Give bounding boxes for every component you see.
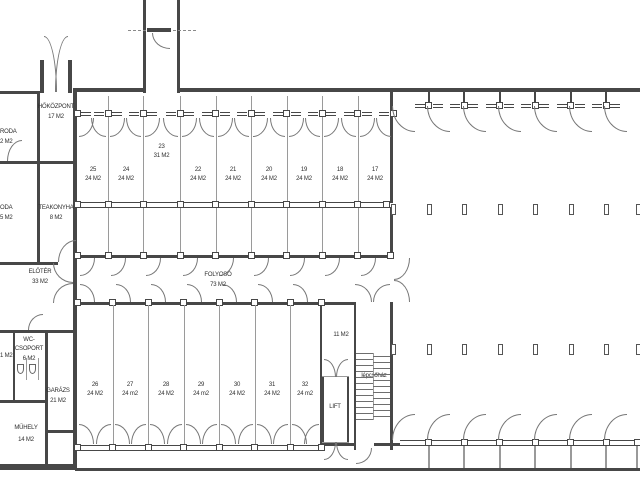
room-24-area: 24 M2 xyxy=(111,175,141,183)
structural-column xyxy=(533,344,538,355)
room-hokozpont-name: HŐKÖZPONT xyxy=(36,103,76,111)
wall-leftwing-bottom xyxy=(0,464,75,470)
room-muhely-area: 14 M2 xyxy=(7,436,45,444)
door-post xyxy=(603,439,610,446)
wall-leftwing-top xyxy=(0,91,40,94)
door-threshold xyxy=(129,112,139,116)
room-teakonyha-name: TEAKONYHA xyxy=(36,204,76,212)
stair-tread xyxy=(356,383,373,384)
room-20-area: 24 M2 xyxy=(254,175,284,183)
door-swing-arc xyxy=(427,414,450,440)
stair-tread xyxy=(356,365,373,366)
door-post xyxy=(567,439,574,446)
door-swing-arc xyxy=(463,106,486,132)
door-threshold xyxy=(220,112,230,116)
door-swing-arc xyxy=(604,414,627,440)
door-swing-arc xyxy=(80,258,95,276)
door-swing-arc xyxy=(392,106,415,132)
hall-double-door-arc xyxy=(394,258,410,280)
stair-tread xyxy=(356,353,373,354)
door-threshold xyxy=(362,112,372,116)
door-swing-arc xyxy=(167,424,182,444)
door-swing-arc xyxy=(218,118,233,137)
door-post xyxy=(177,110,184,117)
stair-tread xyxy=(356,395,373,396)
facade-post xyxy=(636,446,638,468)
window-mullion xyxy=(383,201,390,208)
door-swing-arc xyxy=(131,424,146,444)
door-threshold xyxy=(273,112,283,116)
wall-lift-right xyxy=(347,377,349,442)
structural-column xyxy=(427,204,432,215)
door-swing-arc xyxy=(534,106,557,132)
door-swing-arc xyxy=(115,424,130,444)
vestibule-area-label: 11 M2 xyxy=(329,331,353,339)
door-post xyxy=(318,444,325,451)
door-swing-arc xyxy=(254,258,269,276)
room-28-area: 24 M2 xyxy=(151,390,181,398)
door-swing-arc xyxy=(392,414,415,440)
door-post xyxy=(496,439,503,446)
wall-room-divider xyxy=(108,96,109,256)
room-iroda-upper-name-fragment: RODA xyxy=(0,128,16,136)
room-iroda-lower-area-fragment: 5 M2 xyxy=(0,214,16,222)
wall-leftwing-row4 xyxy=(0,400,45,403)
stair-tread xyxy=(356,389,373,390)
vestibule-double-door-arc xyxy=(355,284,372,302)
facade-post xyxy=(499,446,501,468)
room-17-number: 17 xyxy=(360,166,390,174)
door-post xyxy=(212,252,219,259)
door-post xyxy=(140,110,147,117)
window-mullion xyxy=(354,201,361,208)
wall-room-divider xyxy=(113,305,114,447)
door-post xyxy=(318,299,325,306)
room-26-area: 24 M2 xyxy=(80,390,110,398)
room-iroda-lower-name-fragment: ODA xyxy=(0,204,16,212)
stair-tread xyxy=(373,380,390,381)
structural-column xyxy=(604,204,609,215)
door-swing-arc xyxy=(96,424,111,444)
door-post xyxy=(283,252,290,259)
floor-plan-canvas: HŐKÖZPONT 17 M2 RODA 2 M2 ODA 5 M2 TEAKO… xyxy=(0,0,640,480)
room-22-area: 24 M2 xyxy=(183,175,213,183)
door-post xyxy=(180,444,187,451)
window-band xyxy=(77,202,393,208)
door-swing-arc xyxy=(361,258,376,276)
door-swing-arc xyxy=(534,414,557,440)
wall-room-divider xyxy=(322,96,323,256)
wall-top-west xyxy=(73,88,143,92)
door-swing-arc xyxy=(146,258,161,276)
door-swing-arc xyxy=(116,284,131,302)
shaft-door-leaf xyxy=(147,28,171,32)
door-post xyxy=(387,252,394,259)
room-21-area: 24 M2 xyxy=(218,175,248,183)
vestibule-double-door-arc xyxy=(373,284,390,302)
room-teakonyha-area: 8 M2 xyxy=(36,214,76,222)
door-threshold xyxy=(308,112,318,116)
corridor-area: 73 M2 xyxy=(197,281,239,289)
room-27-number: 27 xyxy=(115,381,145,389)
stair-tread xyxy=(356,419,373,420)
room-iroda-upper-area-fragment: 2 M2 xyxy=(0,138,16,146)
room-muhely-name: MŰHELY xyxy=(7,424,45,432)
wall-room-divider xyxy=(180,96,181,256)
room-wc-line1: WC- xyxy=(12,336,46,344)
stair-tread xyxy=(356,359,373,360)
door-swing-arc xyxy=(324,118,339,137)
lift-label: LIFT xyxy=(323,403,347,411)
door-threshold xyxy=(326,112,336,116)
wall-room-divider xyxy=(290,305,291,447)
door-post xyxy=(216,444,223,451)
wall-room-divider xyxy=(216,96,217,256)
door-swing-arc xyxy=(199,118,214,137)
door-swing-arc xyxy=(150,424,165,444)
door-swing-arc xyxy=(273,424,288,444)
room-26-number: 26 xyxy=(80,381,110,389)
door-swing-arc xyxy=(202,424,217,444)
door-swing-arc xyxy=(258,284,273,302)
door-swing-arc xyxy=(182,118,197,137)
room-wc-line2: CSOPORT xyxy=(10,345,48,353)
toilet-icon xyxy=(17,364,24,374)
wall-room-divider xyxy=(184,305,185,447)
door-threshold xyxy=(450,104,460,108)
door-post xyxy=(287,444,294,451)
door-swing-arc xyxy=(290,258,305,276)
stair-tread xyxy=(373,416,390,417)
door-threshold xyxy=(166,112,176,116)
room-29-number: 29 xyxy=(186,381,216,389)
door-post xyxy=(145,444,152,451)
room-30-number: 30 xyxy=(222,381,252,389)
door-swing-arc xyxy=(427,106,450,132)
eloter-double-door-arc xyxy=(53,283,73,303)
window-mullion xyxy=(74,201,81,208)
room-17-area: 24 M2 xyxy=(360,175,390,183)
door-swing-arc xyxy=(80,284,95,302)
door-post xyxy=(461,439,468,446)
toilet-icon xyxy=(29,364,36,374)
room-31-number: 31 xyxy=(257,381,287,389)
structural-column xyxy=(498,204,503,215)
room-28-number: 28 xyxy=(151,381,181,389)
door-threshold xyxy=(486,104,496,108)
room-eloter-area: 33 M2 xyxy=(20,278,60,286)
room-27-area: 24 m2 xyxy=(115,390,145,398)
room-18-number: 18 xyxy=(325,166,355,174)
entrance-jamb-right xyxy=(68,60,72,93)
door-swing-arc xyxy=(238,424,253,444)
door-post xyxy=(354,252,361,259)
door-swing-arc xyxy=(569,414,592,440)
stair-tread xyxy=(373,404,390,405)
structural-column xyxy=(636,204,640,215)
room-23-number: 23 xyxy=(146,143,177,151)
structural-column xyxy=(604,344,609,355)
hall-double-door-arc xyxy=(394,280,410,302)
structural-column xyxy=(462,344,467,355)
room-hokozpont-area: 17 M2 xyxy=(36,113,76,121)
window-mullion xyxy=(177,201,184,208)
door-swing-arc xyxy=(186,424,201,444)
lift-door-arc xyxy=(324,442,336,460)
door-swing-arc xyxy=(305,118,320,137)
door-swing-arc xyxy=(79,424,94,444)
door-swing-arc xyxy=(463,414,486,440)
stair-tread xyxy=(356,377,373,378)
door-post xyxy=(532,439,539,446)
door-swing-arc xyxy=(304,424,319,444)
door-swing-arc xyxy=(253,118,268,137)
room-23-area: 31 M2 xyxy=(146,152,177,160)
room-garazs-area: 21 M2 xyxy=(42,397,74,405)
wall-garazs-bottom xyxy=(45,430,73,433)
window-mullion xyxy=(319,201,326,208)
wall-core-bottom-east xyxy=(374,443,393,446)
structural-column xyxy=(569,344,574,355)
window-mullion xyxy=(140,201,147,208)
stair-tread xyxy=(356,413,373,414)
door-post xyxy=(425,439,432,446)
door-post xyxy=(354,110,361,117)
window-mullion xyxy=(283,201,290,208)
door-swing-arc xyxy=(151,284,166,302)
door-swing-arc xyxy=(498,106,521,132)
door-threshold xyxy=(557,104,567,108)
door-swing-arc xyxy=(289,118,304,137)
room-garazs-name: GARÁZS xyxy=(42,387,74,395)
facade-post xyxy=(605,446,607,468)
window-mullion xyxy=(105,201,112,208)
door-threshold xyxy=(112,112,122,116)
structural-column xyxy=(636,344,640,355)
door-threshold xyxy=(415,104,425,108)
wall-room-divider xyxy=(219,305,220,447)
stair-tread xyxy=(373,356,390,357)
room-29-area: 24 m2 xyxy=(186,390,216,398)
door-swing-arc xyxy=(604,106,627,132)
wall-room-divider xyxy=(143,96,144,256)
door-threshold xyxy=(291,112,301,116)
room-wc-area: 6 M2 xyxy=(12,355,46,363)
room-25-number: 25 xyxy=(78,166,108,174)
door-post xyxy=(105,110,112,117)
door-post xyxy=(74,110,81,117)
door-threshold xyxy=(81,112,91,116)
door-swing-arc xyxy=(163,118,178,137)
shaft-door-arc xyxy=(152,33,170,49)
entrance-door-arc xyxy=(55,36,68,92)
stair-tread xyxy=(373,374,390,375)
room-19-number: 19 xyxy=(289,166,319,174)
wall-room-divider xyxy=(148,305,149,447)
door-post xyxy=(319,110,326,117)
door-threshold xyxy=(237,112,247,116)
door-swing-arc xyxy=(126,118,141,137)
door-swing-arc xyxy=(257,424,272,444)
door-post xyxy=(634,439,640,446)
room-19-area: 24 M2 xyxy=(289,175,319,183)
room-18-area: 24 M2 xyxy=(325,175,355,183)
room-31-area: 24 M2 xyxy=(257,390,287,398)
door-swing-arc xyxy=(221,424,236,444)
stair-entrance-door-arc xyxy=(356,448,372,464)
door-post xyxy=(248,110,255,117)
door-swing-arc xyxy=(498,414,521,440)
room-22-number: 22 xyxy=(183,166,213,174)
door-threshold xyxy=(379,112,389,116)
door-swing-arc xyxy=(145,118,160,137)
room-24-number: 24 xyxy=(111,166,141,174)
door-post xyxy=(74,444,81,451)
wall-shaft-right xyxy=(177,0,180,93)
wall-room-divider xyxy=(287,96,288,256)
stair-tread xyxy=(373,398,390,399)
room-20-number: 20 xyxy=(254,166,284,174)
wall-room-divider xyxy=(251,96,252,256)
stair-tread xyxy=(373,362,390,363)
wall-hall-bottom-link xyxy=(393,443,400,446)
wc-zone-door-arc xyxy=(28,314,43,330)
lift-door-arc xyxy=(324,359,336,377)
door-threshold xyxy=(184,112,194,116)
structural-column xyxy=(498,344,503,355)
wall-leftwing-row3 xyxy=(0,330,73,333)
structural-column xyxy=(533,204,538,215)
facade-post xyxy=(570,446,572,468)
stair-tread xyxy=(373,410,390,411)
lift-door-arc xyxy=(336,442,348,460)
structural-column xyxy=(391,204,396,215)
door-swing-arc xyxy=(91,118,106,137)
window-mullion xyxy=(248,201,255,208)
wall-spine xyxy=(73,88,77,470)
edge-room-area-fragment: 1 M2 xyxy=(0,352,13,360)
door-threshold xyxy=(521,104,531,108)
door-swing-arc xyxy=(325,258,340,276)
room-eloter-name: ELŐTÉR xyxy=(20,268,60,276)
door-swing-arc xyxy=(111,258,126,276)
wall-bottom-edge xyxy=(75,468,640,471)
door-swing-arc xyxy=(270,118,285,137)
door-swing-arc xyxy=(360,118,375,137)
facade-post xyxy=(534,446,536,468)
stair-tread xyxy=(373,368,390,369)
door-swing-arc xyxy=(110,118,125,137)
room-21-number: 21 xyxy=(218,166,248,174)
room-32-area: 24 m2 xyxy=(290,390,320,398)
room-32-number: 32 xyxy=(290,381,320,389)
facade-post xyxy=(428,446,430,468)
door-threshold xyxy=(147,112,157,116)
door-swing-arc xyxy=(183,258,198,276)
room-30-area: 24 M2 xyxy=(222,390,252,398)
door-threshold xyxy=(344,112,354,116)
door-swing-arc xyxy=(376,118,391,137)
structural-column xyxy=(462,204,467,215)
facade-post xyxy=(463,446,465,468)
stair-tread xyxy=(356,401,373,402)
door-swing-arc xyxy=(293,284,308,302)
wall-room-divider xyxy=(255,305,256,447)
room-25-area: 24 M2 xyxy=(78,175,108,183)
structural-column xyxy=(569,204,574,215)
door-post xyxy=(212,110,219,117)
door-post xyxy=(283,110,290,117)
door-post xyxy=(251,444,258,451)
structural-column xyxy=(391,344,396,355)
door-swing-arc xyxy=(569,106,592,132)
door-post xyxy=(109,444,116,451)
wall-leftwing-row2 xyxy=(0,262,58,265)
structural-column xyxy=(427,344,432,355)
door-swing-arc xyxy=(341,118,356,137)
stair-tread xyxy=(356,371,373,372)
window-mullion xyxy=(212,201,219,208)
door-threshold xyxy=(202,112,212,116)
door-swing-arc xyxy=(234,118,249,137)
stair-tread xyxy=(356,407,373,408)
lift-door-arc xyxy=(336,359,348,377)
door-threshold xyxy=(255,112,265,116)
stair-tread xyxy=(373,392,390,393)
wall-shaft-left xyxy=(143,0,146,93)
wall-room-divider xyxy=(358,96,359,256)
door-threshold xyxy=(592,104,602,108)
stair-tread xyxy=(373,386,390,387)
door-threshold xyxy=(94,112,104,116)
